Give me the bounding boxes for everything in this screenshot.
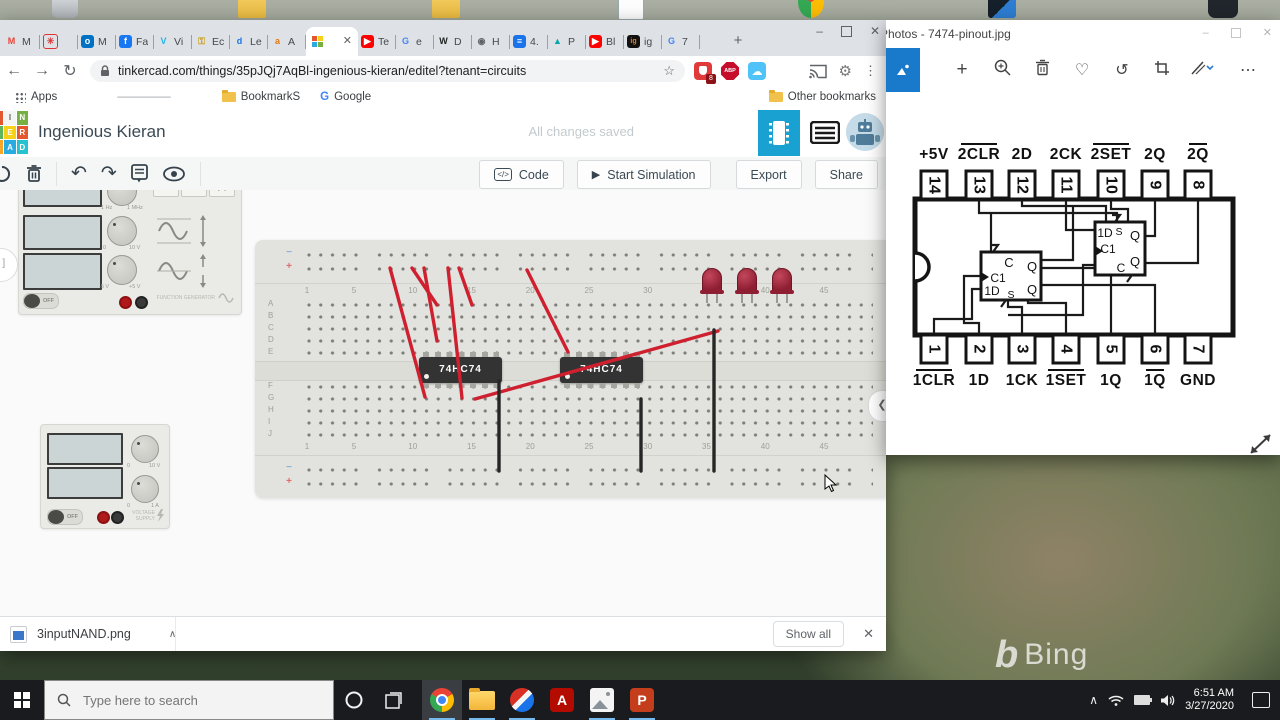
start-simulation-button[interactable]: ▶ Start Simulation <box>577 160 711 189</box>
forward-icon[interactable]: → <box>28 62 56 80</box>
tab-title: P <box>568 36 575 48</box>
pin-label-top: 2Q <box>1144 146 1166 163</box>
close-download-bar-icon[interactable]: ✕ <box>863 626 874 642</box>
rows-a-e[interactable] <box>303 299 873 359</box>
code-button[interactable]: </> Code <box>479 160 563 189</box>
pin-label-bottom: 1CLR <box>913 372 955 389</box>
abp-extension-icon[interactable]: ABP <box>721 62 739 80</box>
gmail-favicon: M <box>5 35 18 48</box>
tinkercad-header: TINKERCAD Ingenious Kieran All changes s… <box>0 108 886 158</box>
logo-cell: K <box>0 126 3 140</box>
edit-icon[interactable] <box>1182 60 1222 81</box>
back-icon[interactable]: ← <box>0 62 28 80</box>
tab-title: A <box>288 36 295 48</box>
show-all-button[interactable]: Show all <box>773 621 844 647</box>
logo-cell: R <box>17 126 28 140</box>
column-number: 5 <box>352 286 356 295</box>
rail-plus-marker: + <box>286 262 292 272</box>
desktop-folder-icon[interactable] <box>432 0 460 18</box>
tab-title: M <box>22 36 31 48</box>
row-letter: C <box>268 323 274 332</box>
minimize-icon[interactable]: – <box>816 24 823 38</box>
logo-cell: I <box>4 111 15 125</box>
taskbar-chrome-icon[interactable] <box>422 680 462 720</box>
row-letter: E <box>268 347 273 356</box>
outlook-favicon: o <box>81 35 94 48</box>
fg-square-wave-button[interactable]: ⎍ <box>153 190 179 197</box>
amazon-favicon: a <box>271 35 284 48</box>
fg-screen <box>23 190 102 207</box>
bing-b-icon: b <box>995 638 1018 672</box>
bing-watermark: b Bing <box>995 638 1088 672</box>
column-number: 45 <box>820 442 829 451</box>
column-number: 35 <box>702 442 711 451</box>
column-number: 30 <box>643 286 652 295</box>
tinkercad-toolbar: ↶ ↷ </> Code ▶ Start Simulation Export <box>0 157 886 191</box>
google-favicon: G <box>399 35 412 48</box>
bookmark-folder[interactable]: BookmarkS <box>222 91 300 103</box>
start-button[interactable] <box>0 680 44 720</box>
pin-label-top: +5V <box>919 146 949 163</box>
rail-plus-marker: + <box>286 477 292 487</box>
svg-text:8: 8 <box>1190 181 1207 190</box>
action-center-icon[interactable] <box>1252 692 1270 708</box>
svg-text:7: 7 <box>1190 345 1207 354</box>
fg-brand-icon <box>217 291 235 305</box>
desktop-document-icon[interactable] <box>618 0 644 20</box>
photos-window-title: Photos - 7474-pinout.jpg <box>886 27 1011 41</box>
apps-grid-icon <box>14 91 26 103</box>
pin-label-bottom: 1D <box>969 372 990 389</box>
pin-label-top: 2SET <box>1091 146 1132 163</box>
column-number: 25 <box>585 286 594 295</box>
view-eye-icon[interactable] <box>162 165 186 183</box>
taskbar-search[interactable] <box>44 680 334 720</box>
fg-negative-terminal[interactable] <box>135 296 148 309</box>
taskbar-photos-icon[interactable] <box>582 680 622 720</box>
column-number: 20 <box>526 286 535 295</box>
browser-tab-wikipedia[interactable]: WD <box>434 27 472 56</box>
tab-title: H <box>492 36 500 48</box>
fg-triangle-wave-button[interactable]: ⋀ <box>209 190 235 197</box>
redo-icon[interactable]: ↷ <box>101 164 117 184</box>
ic-74HC74[interactable]: 74HC74 <box>419 357 502 383</box>
tab-title: D <box>454 36 462 48</box>
reload-icon[interactable]: ↻ <box>56 61 84 81</box>
photos-app-icon <box>886 48 920 92</box>
tab-title: 7 <box>682 36 688 48</box>
bookmark-item-google[interactable]: G Google <box>320 91 371 103</box>
pin-label-bottom: 1SET <box>1046 372 1087 389</box>
tab-title: Vi <box>174 36 183 48</box>
add-icon[interactable]: + <box>942 59 982 81</box>
row-letter: H <box>268 405 274 414</box>
maximize-icon[interactable] <box>1231 28 1241 38</box>
fg-screen <box>23 215 102 250</box>
desktop-chrome-icon[interactable] <box>798 0 824 18</box>
folder-icon <box>769 92 783 102</box>
ps-current-screen <box>47 467 123 499</box>
more-icon[interactable]: ⋯ <box>1228 60 1268 80</box>
folder-icon <box>222 92 236 102</box>
tab-strip: MM✳oMfFaVVi⚿EcdLeaA✕▶TeGeWD◉H≡4.▲P▶Bligi… <box>0 20 886 56</box>
pin-label-bottom: 1Q <box>1100 372 1122 389</box>
column-number: 45 <box>820 286 829 295</box>
row-letter: B <box>268 311 273 320</box>
cloud-extension-icon[interactable]: ☁ <box>748 62 766 80</box>
delete-icon[interactable] <box>1022 59 1062 81</box>
fg-screen <box>23 253 102 290</box>
export-button[interactable]: Export <box>736 160 802 189</box>
youtube-favicon: ▶ <box>589 35 602 48</box>
fg-amplitude-graphic <box>155 213 217 249</box>
share-button[interactable]: Share <box>815 160 878 189</box>
column-number: 1 <box>305 286 309 295</box>
components-chip-button[interactable] <box>758 110 800 156</box>
browser-tab-globe[interactable]: ◉H <box>472 27 510 56</box>
tab-title: Bl <box>606 36 615 48</box>
facebook-favicon: f <box>119 35 132 48</box>
bookmark-item[interactable]: ————— <box>117 91 170 103</box>
toolbar-divider <box>200 162 201 186</box>
gear-icon[interactable]: ⚙ <box>839 62 852 80</box>
svg-text:C1: C1 <box>990 271 1006 285</box>
favorite-heart-icon[interactable]: ♡ <box>1062 60 1102 80</box>
pin-label-top: 2D <box>1012 146 1033 163</box>
code-icon: </> <box>494 168 512 181</box>
rail-minus-marker: − <box>286 248 292 258</box>
bookmarks-bar: Apps ————— BookmarkS G Google Other book… <box>0 86 886 109</box>
svg-text:12: 12 <box>1014 176 1031 194</box>
chip-label: 74HC74 <box>560 357 643 383</box>
red-led[interactable] <box>736 268 758 304</box>
download-item[interactable]: 3inputNAND.png ∧ <box>10 622 176 646</box>
docs-favicon: ≡ <box>513 35 526 48</box>
svg-text:Q: Q <box>1130 228 1140 243</box>
svg-text:Q: Q <box>1027 259 1037 274</box>
component-list-button[interactable] <box>810 121 840 149</box>
column-number: 1 <box>305 442 309 451</box>
google-icon: G <box>320 91 329 103</box>
tab-close-icon[interactable]: ✕ <box>343 36 352 47</box>
vimeo-favicon: V <box>157 35 170 48</box>
pin-label-top: 2CLR <box>958 146 1000 163</box>
column-number: 30 <box>643 442 652 451</box>
cortana-button[interactable] <box>334 680 374 720</box>
browser-tab-autodesk[interactable]: ▲P <box>548 27 586 56</box>
task-view-button[interactable] <box>374 680 414 720</box>
tab-title: Fa <box>136 36 148 48</box>
wifi-icon[interactable] <box>1108 694 1124 706</box>
avatar[interactable] <box>846 113 884 151</box>
column-number: 15 <box>467 442 476 451</box>
column-number: 15 <box>467 286 476 295</box>
fg-power-toggle[interactable]: OFF <box>23 293 59 309</box>
zoom-icon[interactable] <box>982 59 1022 81</box>
svg-text:S: S <box>1007 289 1014 301</box>
fg-offset-knob[interactable] <box>107 255 137 285</box>
url-text: tinkercad.com/things/35pJQj7AqBl-ingenio… <box>118 64 663 78</box>
row-letter: A <box>268 299 273 308</box>
tray-chevron-icon[interactable]: ∧ <box>1089 693 1098 707</box>
speaker-icon[interactable] <box>1160 694 1175 707</box>
lock-icon <box>100 65 110 77</box>
rotate-icon[interactable] <box>0 164 12 184</box>
url-bar[interactable]: tinkercad.com/things/35pJQj7AqBl-ingenio… <box>90 60 685 82</box>
tab-title: ig <box>644 36 652 48</box>
circuit-canvas[interactable]: 1 Hz 1 MHz 0 10 V -5 V +5 V ⎍ ∿ ⋀ OFF FU… <box>0 190 886 616</box>
photo-view[interactable]: C Q C1 1D S Q 1D S Q C1 Q C 141312111098… <box>886 92 1280 455</box>
svg-text:3: 3 <box>1014 345 1031 354</box>
desktop-app-icon[interactable] <box>1208 0 1238 18</box>
bottom-rail-plus[interactable] <box>303 478 873 490</box>
rows-f-j[interactable] <box>303 381 873 441</box>
column-number: 10 <box>408 442 417 451</box>
tab-title: Le <box>250 36 262 48</box>
logo-cell: N <box>17 111 28 125</box>
wikipedia-favicon: W <box>437 35 450 48</box>
tinkercad-logo[interactable]: TINKERCAD <box>0 111 28 154</box>
column-number: 20 <box>526 442 535 451</box>
logo-cell: E <box>4 126 15 140</box>
crop-icon[interactable] <box>1142 60 1182 81</box>
desktop-app-icon[interactable] <box>988 0 1016 18</box>
pin-label-top: 2CK <box>1050 146 1083 163</box>
taskbar-powerpoint-icon[interactable]: P <box>622 680 662 720</box>
zoom-to-fit-button[interactable]: [ ] <box>0 248 18 282</box>
column-number: 40 <box>761 286 770 295</box>
undo-icon[interactable]: ↶ <box>71 164 87 184</box>
browser-tab-amazon[interactable]: aA <box>268 27 306 56</box>
rail-minus-marker: − <box>286 463 292 473</box>
red-led[interactable] <box>771 268 793 304</box>
search-icon <box>57 693 71 707</box>
row-letter: G <box>268 393 274 402</box>
notes-icon[interactable] <box>131 164 148 183</box>
google-favicon: G <box>665 35 678 48</box>
browser-menu-icon[interactable]: ⋮ <box>864 63 878 79</box>
other-bookmarks[interactable]: Other bookmarks <box>769 91 876 103</box>
ps-voltage-screen <box>47 433 123 465</box>
breadboard[interactable]: 115510101515202025253030353540404545ABCD… <box>255 240 886 498</box>
pinwheel-favicon: ✳ <box>43 34 58 49</box>
desktop: b Bing MM✳oMfFaVVi⚿EcdLeaA✕▶TeGeWD◉H≡4.▲… <box>0 0 1280 720</box>
rotate-icon[interactable]: ↺ <box>1102 60 1142 80</box>
tab-title: Te <box>378 36 389 48</box>
svg-text:6: 6 <box>1147 345 1164 354</box>
fg-positive-terminal[interactable] <box>119 296 132 309</box>
maximize-icon[interactable] <box>841 26 852 37</box>
browser-tab-google[interactable]: G7 <box>662 27 700 56</box>
pinout-diagram: C Q C1 1D S Q 1D S Q C1 Q C 141312111098… <box>888 135 1278 397</box>
svg-text:1D: 1D <box>1097 226 1113 240</box>
svg-text:9: 9 <box>1147 181 1164 190</box>
svg-text:10: 10 <box>1103 176 1120 194</box>
pin-label-bottom: 1CK <box>1006 372 1039 389</box>
fg-amplitude-knob[interactable] <box>107 216 137 246</box>
taskbar: A P ∧ 6:51 AM 3/27/2020 <box>0 680 1280 720</box>
browser-tab-ig[interactable]: igig <box>624 27 662 56</box>
cast-icon[interactable] <box>809 64 827 79</box>
adblock-extension-icon[interactable]: 8 <box>694 62 712 80</box>
windows-logo-icon <box>14 692 30 708</box>
recycle-bin-icon[interactable] <box>52 0 78 18</box>
pin-label-bottom: 1Q <box>1144 372 1166 389</box>
function-generator[interactable]: 1 Hz 1 MHz 0 10 V -5 V +5 V ⎍ ∿ ⋀ OFF FU… <box>18 190 242 315</box>
browser-tab-facebook[interactable]: fFa <box>116 27 154 56</box>
close-icon[interactable]: ✕ <box>1263 26 1272 39</box>
browser-window: MM✳oMfFaVVi⚿EcdLeaA✕▶TeGeWD◉H≡4.▲P▶Bligi… <box>0 20 886 650</box>
svg-text:4: 4 <box>1058 345 1075 354</box>
pin-label-top: 2Q <box>1187 146 1209 163</box>
row-letter: I <box>268 417 270 426</box>
tab-title: Ec <box>212 36 224 48</box>
svg-text:C: C <box>1004 255 1013 270</box>
pin-label-bottom: GND <box>1180 372 1216 389</box>
browser-navbar: ← → ↻ tinkercad.com/things/35pJQj7AqBl-i… <box>0 56 886 86</box>
taskbar-clock[interactable]: 6:51 AM 3/27/2020 <box>1185 687 1234 713</box>
column-number: 5 <box>352 442 356 451</box>
autodesk-favicon: ▲ <box>551 35 564 48</box>
taskbar-browser-round-icon[interactable] <box>502 680 542 720</box>
bottom-rail-minus[interactable] <box>303 464 873 476</box>
ic-74HC74[interactable]: 74HC74 <box>560 357 643 383</box>
photos-toolbar: + ♡ ↺ ⋯ <box>886 48 1280 92</box>
minimize-icon[interactable]: – <box>1203 27 1209 39</box>
chip-label: 74HC74 <box>419 357 502 383</box>
browser-tab-key[interactable]: ⚿Ec <box>192 27 230 56</box>
photos-titlebar[interactable]: Photos - 7474-pinout.jpg – ✕ <box>886 20 1280 48</box>
ps-current-knob[interactable] <box>131 475 159 503</box>
delete-icon[interactable] <box>26 164 42 183</box>
svg-text:Q: Q <box>1027 282 1037 297</box>
close-icon[interactable]: ✕ <box>870 24 880 38</box>
browser-tab-tinkercad[interactable]: ✕ <box>306 27 358 56</box>
svg-text:Q: Q <box>1130 254 1140 269</box>
svg-text:5: 5 <box>1103 345 1120 354</box>
ps-brand-icon <box>156 509 165 522</box>
browser-tab-vimeo[interactable]: VVi <box>154 27 192 56</box>
power-supply[interactable]: 0 10 V 0 1 A OFF VOLTAGE SUPPLY <box>40 424 170 529</box>
ps-positive-terminal[interactable] <box>97 511 110 524</box>
fg-frequency-knob[interactable] <box>107 190 137 206</box>
collapse-panel-icon[interactable]: ❮ <box>868 390 886 422</box>
row-letter: J <box>268 429 272 438</box>
tinkercad-favicon <box>312 36 324 48</box>
globe-favicon: ◉ <box>475 35 488 48</box>
search-input[interactable] <box>81 692 305 709</box>
toolbar-divider <box>56 162 57 186</box>
tab-title: 4. <box>530 36 539 48</box>
svg-text:1D: 1D <box>984 284 1000 298</box>
browser-tab-docs[interactable]: ≡4. <box>510 27 548 56</box>
ps-power-toggle[interactable]: OFF <box>47 509 83 525</box>
key-favicon: ⚿ <box>195 35 208 48</box>
youtube-favicon: ▶ <box>361 35 374 48</box>
save-status: All changes saved <box>528 124 634 139</box>
resize-arrow-icon <box>1246 430 1276 458</box>
svg-text:S: S <box>1115 226 1122 238</box>
chip-icon <box>766 116 792 150</box>
red-led[interactable] <box>701 268 723 304</box>
ps-voltage-knob[interactable] <box>131 435 159 463</box>
column-number: 25 <box>585 442 594 451</box>
photos-window: Photos - 7474-pinout.jpg – ✕ + ♡ ↺ <box>886 20 1280 455</box>
svg-text:13: 13 <box>971 176 988 194</box>
svg-text:2: 2 <box>971 345 988 354</box>
play-icon: ▶ <box>592 168 600 181</box>
browser-tab-gmail[interactable]: MM <box>2 27 40 56</box>
taskbar-acrobat-icon[interactable]: A <box>542 680 582 720</box>
ig-favicon: ig <box>627 35 640 48</box>
row-letter: D <box>268 335 274 344</box>
svg-text:11: 11 <box>1058 177 1075 194</box>
top-rail-minus[interactable] <box>303 249 873 261</box>
bookmark-star-icon[interactable]: ☆ <box>663 63 675 79</box>
logo-cell: D <box>17 140 28 154</box>
browser-tab-youtube[interactable]: ▶Te <box>358 27 396 56</box>
battery-icon[interactable] <box>1134 695 1150 705</box>
download-bar: 3inputNAND.png ∧ Show all ✕ <box>0 616 886 651</box>
mouse-cursor <box>824 474 838 493</box>
logo-cell: A <box>4 140 15 154</box>
browser-tab-pinwheel[interactable]: ✳ <box>40 27 78 56</box>
image-file-icon <box>10 626 27 643</box>
new-tab-button[interactable]: + <box>726 30 750 52</box>
browser-tab-outlook[interactable]: oM <box>78 27 116 56</box>
browser-tab-google[interactable]: Ge <box>396 27 434 56</box>
fg-offset-graphic <box>155 253 217 289</box>
svg-text:C1: C1 <box>1100 242 1116 256</box>
column-number: 40 <box>761 442 770 451</box>
svg-text:C: C <box>1117 261 1126 275</box>
taskbar-explorer-icon[interactable] <box>462 680 502 720</box>
browser-tab-youtube[interactable]: ▶Bl <box>586 27 624 56</box>
logo-cell: T <box>0 111 3 125</box>
fg-sine-wave-button[interactable]: ∿ <box>181 190 207 197</box>
tab-title: e <box>416 36 422 48</box>
svg-text:1: 1 <box>926 345 943 354</box>
row-letter: F <box>268 381 273 390</box>
desktop-folder-icon[interactable] <box>238 0 266 18</box>
apps-shortcut[interactable]: Apps <box>14 91 57 103</box>
column-number: 10 <box>408 286 417 295</box>
browser-tab-dlib[interactable]: dLe <box>230 27 268 56</box>
logo-cell: C <box>0 140 3 154</box>
svg-text:14: 14 <box>926 176 943 194</box>
project-title[interactable]: Ingenious Kieran <box>38 122 166 142</box>
tab-title: M <box>98 36 107 48</box>
dlib-favicon: d <box>233 35 246 48</box>
